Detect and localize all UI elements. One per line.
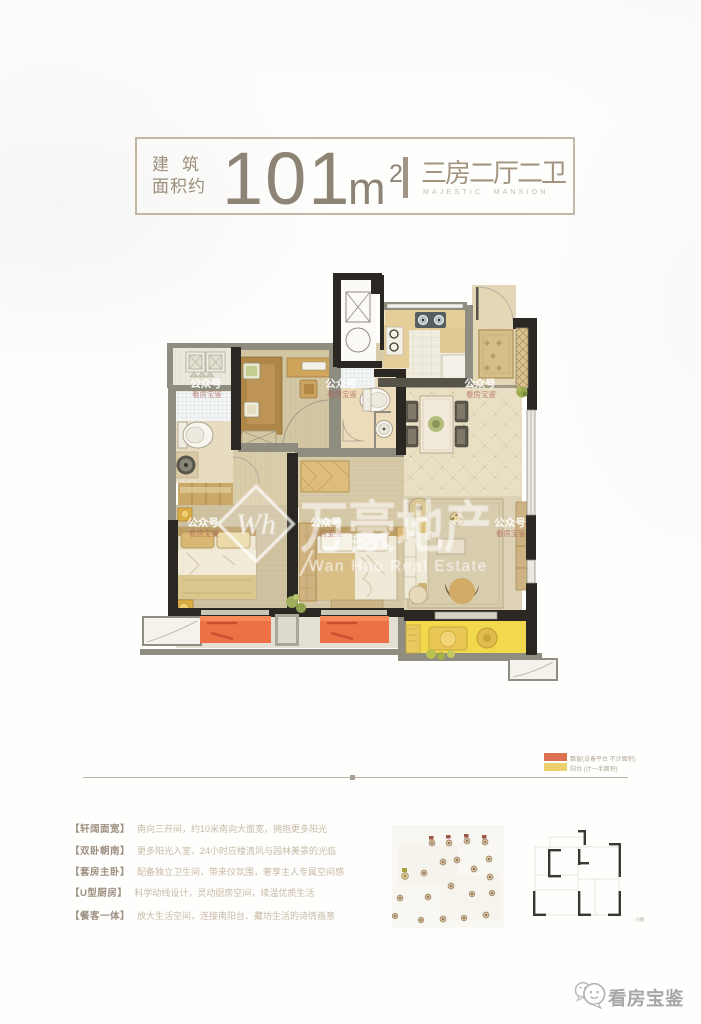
svg-text:看房宝鉴: 看房宝鉴 [466,389,496,399]
svg-text:公众号: 公众号 [464,377,496,390]
svg-text:公众号: 公众号 [325,377,357,390]
svg-text:万豪地产: 万豪地产 [300,496,492,559]
svg-text:公众号: 公众号 [187,516,219,529]
svg-text:公众号: 公众号 [494,516,526,529]
svg-text:看房宝鉴: 看房宝鉴 [192,389,222,399]
svg-text:小图: 小图 [635,916,644,923]
svg-text:看房宝鉴: 看房宝鉴 [327,389,357,399]
svg-text:Wan Hao Real Estate: Wan Hao Real Estate [309,558,488,575]
svg-text:公众号: 公众号 [190,377,222,390]
svg-text:Wh: Wh [236,508,276,541]
svg-text:看房宝鉴: 看房宝鉴 [189,528,219,538]
svg-text:看房宝鉴: 看房宝鉴 [496,528,526,538]
